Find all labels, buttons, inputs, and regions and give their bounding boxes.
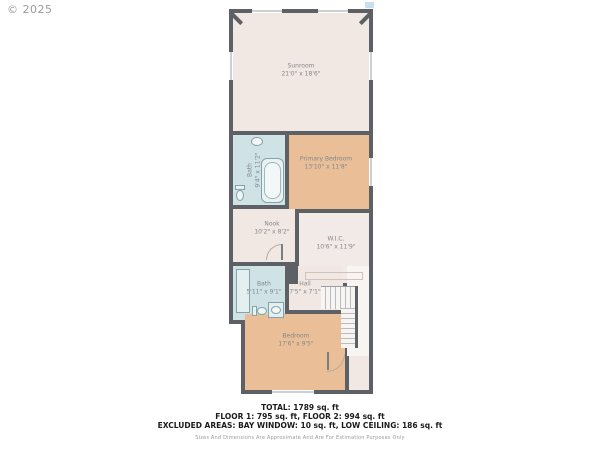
room-name: Bath <box>247 152 255 187</box>
area-summary: TOTAL: 1789 sq. ft FLOOR 1: 795 sq. ft, … <box>0 403 600 442</box>
room-dims: 13'10" x 11'8" <box>300 163 352 171</box>
door-leaf-bedroom <box>327 352 329 370</box>
room-dims: 7'5" x 7'1" <box>289 288 320 296</box>
room-label-nook: Nook 10'2" x 8'2" <box>254 221 289 236</box>
toilet-lower-icon <box>257 307 267 315</box>
sink-icon <box>251 137 263 146</box>
room-landing <box>349 356 369 390</box>
room-primary-bedroom <box>289 135 369 209</box>
room-name: W.I.C. <box>316 236 355 244</box>
room-dims: 9'4" x 11'2" <box>254 152 262 187</box>
room-dims: 10'6" x 11'9" <box>316 243 355 251</box>
window-sunroom-right <box>369 52 373 80</box>
window-primary-right <box>369 158 373 186</box>
door-leaf-nook <box>281 244 283 260</box>
stairs-lower-run <box>341 308 356 348</box>
room-bedroom <box>245 314 345 390</box>
room-label-bath-lower: Bath 5'11" x 9'1" <box>246 281 281 296</box>
room-dims: 21'0" x 18'6" <box>281 70 320 78</box>
vanity-sink-icon <box>271 306 281 314</box>
room-label-hall: Hall 7'5" x 7'1" <box>289 281 320 296</box>
total-area-text: TOTAL: 1789 sq. ft <box>0 403 600 412</box>
toilet-icon <box>236 190 244 201</box>
stairs-icon <box>321 286 355 309</box>
floorplan: Sunroom 21'0" x 18'6" Bath 9'4" x 11'2" … <box>0 0 600 450</box>
bathtub-basin <box>264 162 281 199</box>
room-dims: 10'2" x 8'2" <box>254 228 289 236</box>
window-sunroom-top-right <box>318 9 348 13</box>
room-name: Bedroom <box>278 333 313 341</box>
room-name: Sunroom <box>281 63 320 71</box>
room-label-wic: W.I.C. 10'6" x 11'9" <box>316 236 355 251</box>
window-bedroom-bottom <box>272 390 314 394</box>
room-label-sunroom: Sunroom 21'0" x 18'6" <box>281 63 320 78</box>
closet-rod <box>305 272 363 280</box>
stair-rail <box>355 286 358 348</box>
room-label-bath-upper: Bath 9'4" x 11'2" <box>247 152 262 187</box>
excluded-areas-text: EXCLUDED AREAS: BAY WINDOW: 10 sq. ft, L… <box>0 421 600 430</box>
floor-areas-text: FLOOR 1: 795 sq. ft, FLOOR 2: 994 sq. ft <box>0 412 600 421</box>
disclaimer-text: Sizes And Dimensions Are Approximate And… <box>0 435 600 441</box>
room-name: Hall <box>289 281 320 289</box>
floorplan-page: { "copyright": "© 2025", "floorplan": { … <box>0 0 600 450</box>
room-dims: 5'11" x 9'1" <box>246 288 281 296</box>
room-dims: 17'6" x 9'5" <box>278 340 313 348</box>
room-name: Primary Bedroom <box>300 156 352 164</box>
room-label-bedroom: Bedroom 17'6" x 9'5" <box>278 333 313 348</box>
window-sunroom-top-left <box>252 9 282 13</box>
room-nook <box>233 209 295 262</box>
room-name: Nook <box>254 221 289 229</box>
window-sunroom-left <box>229 52 233 80</box>
room-name: Bath <box>246 281 281 289</box>
room-label-primary-bedroom: Primary Bedroom 13'10" x 11'8" <box>300 156 352 171</box>
